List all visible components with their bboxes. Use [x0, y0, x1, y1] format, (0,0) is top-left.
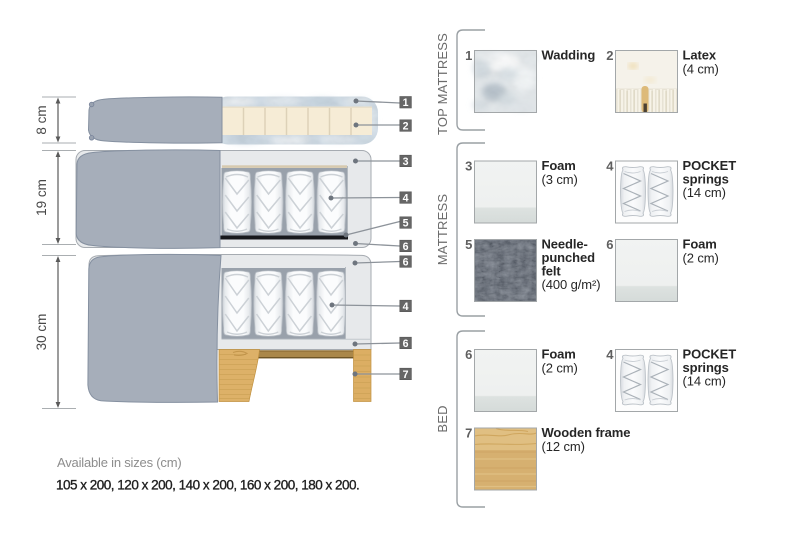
svg-text:7: 7: [403, 369, 409, 381]
svg-text:(12 cm): (12 cm): [542, 439, 585, 454]
svg-text:2: 2: [403, 120, 409, 132]
svg-text:6: 6: [403, 241, 409, 253]
svg-text:4: 4: [403, 301, 409, 313]
svg-text:6: 6: [465, 347, 472, 362]
svg-text:4: 4: [606, 347, 614, 362]
svg-text:6: 6: [403, 256, 409, 268]
svg-text:(14 cm): (14 cm): [683, 374, 726, 389]
svg-text:MATTRESS: MATTRESS: [435, 194, 450, 266]
svg-text:3: 3: [465, 159, 472, 174]
svg-text:(2 cm): (2 cm): [542, 360, 578, 375]
svg-text:3: 3: [403, 156, 409, 168]
svg-text:(4 cm): (4 cm): [683, 61, 719, 76]
svg-text:(14 cm): (14 cm): [683, 185, 726, 200]
svg-text:6: 6: [606, 237, 613, 252]
svg-text:5: 5: [403, 217, 409, 229]
svg-text:1: 1: [403, 97, 409, 109]
svg-text:1: 1: [465, 48, 472, 63]
svg-text:4: 4: [606, 159, 614, 174]
svg-text:(2 cm): (2 cm): [683, 250, 719, 265]
svg-text:7: 7: [465, 426, 472, 441]
svg-text:TOP MATTRESS: TOP MATTRESS: [435, 33, 450, 135]
svg-text:19 cm: 19 cm: [34, 179, 49, 216]
svg-text:8 cm: 8 cm: [34, 105, 49, 134]
svg-text:BED: BED: [435, 405, 450, 432]
svg-text:6: 6: [403, 338, 409, 350]
svg-text:4: 4: [403, 192, 409, 204]
svg-text:(3 cm): (3 cm): [542, 172, 578, 187]
svg-text:5: 5: [465, 237, 472, 252]
svg-text:30 cm: 30 cm: [34, 314, 49, 351]
svg-text:Wadding: Wadding: [542, 48, 596, 63]
svg-text:2: 2: [606, 48, 613, 63]
svg-text:(400 g/m²): (400 g/m²): [542, 277, 601, 292]
svg-text:Available in sizes (cm): Available in sizes (cm): [57, 455, 181, 470]
svg-text:105 x 200, 120 x 200, 140 x 20: 105 x 200, 120 x 200, 140 x 200, 160 x 2…: [56, 478, 359, 493]
